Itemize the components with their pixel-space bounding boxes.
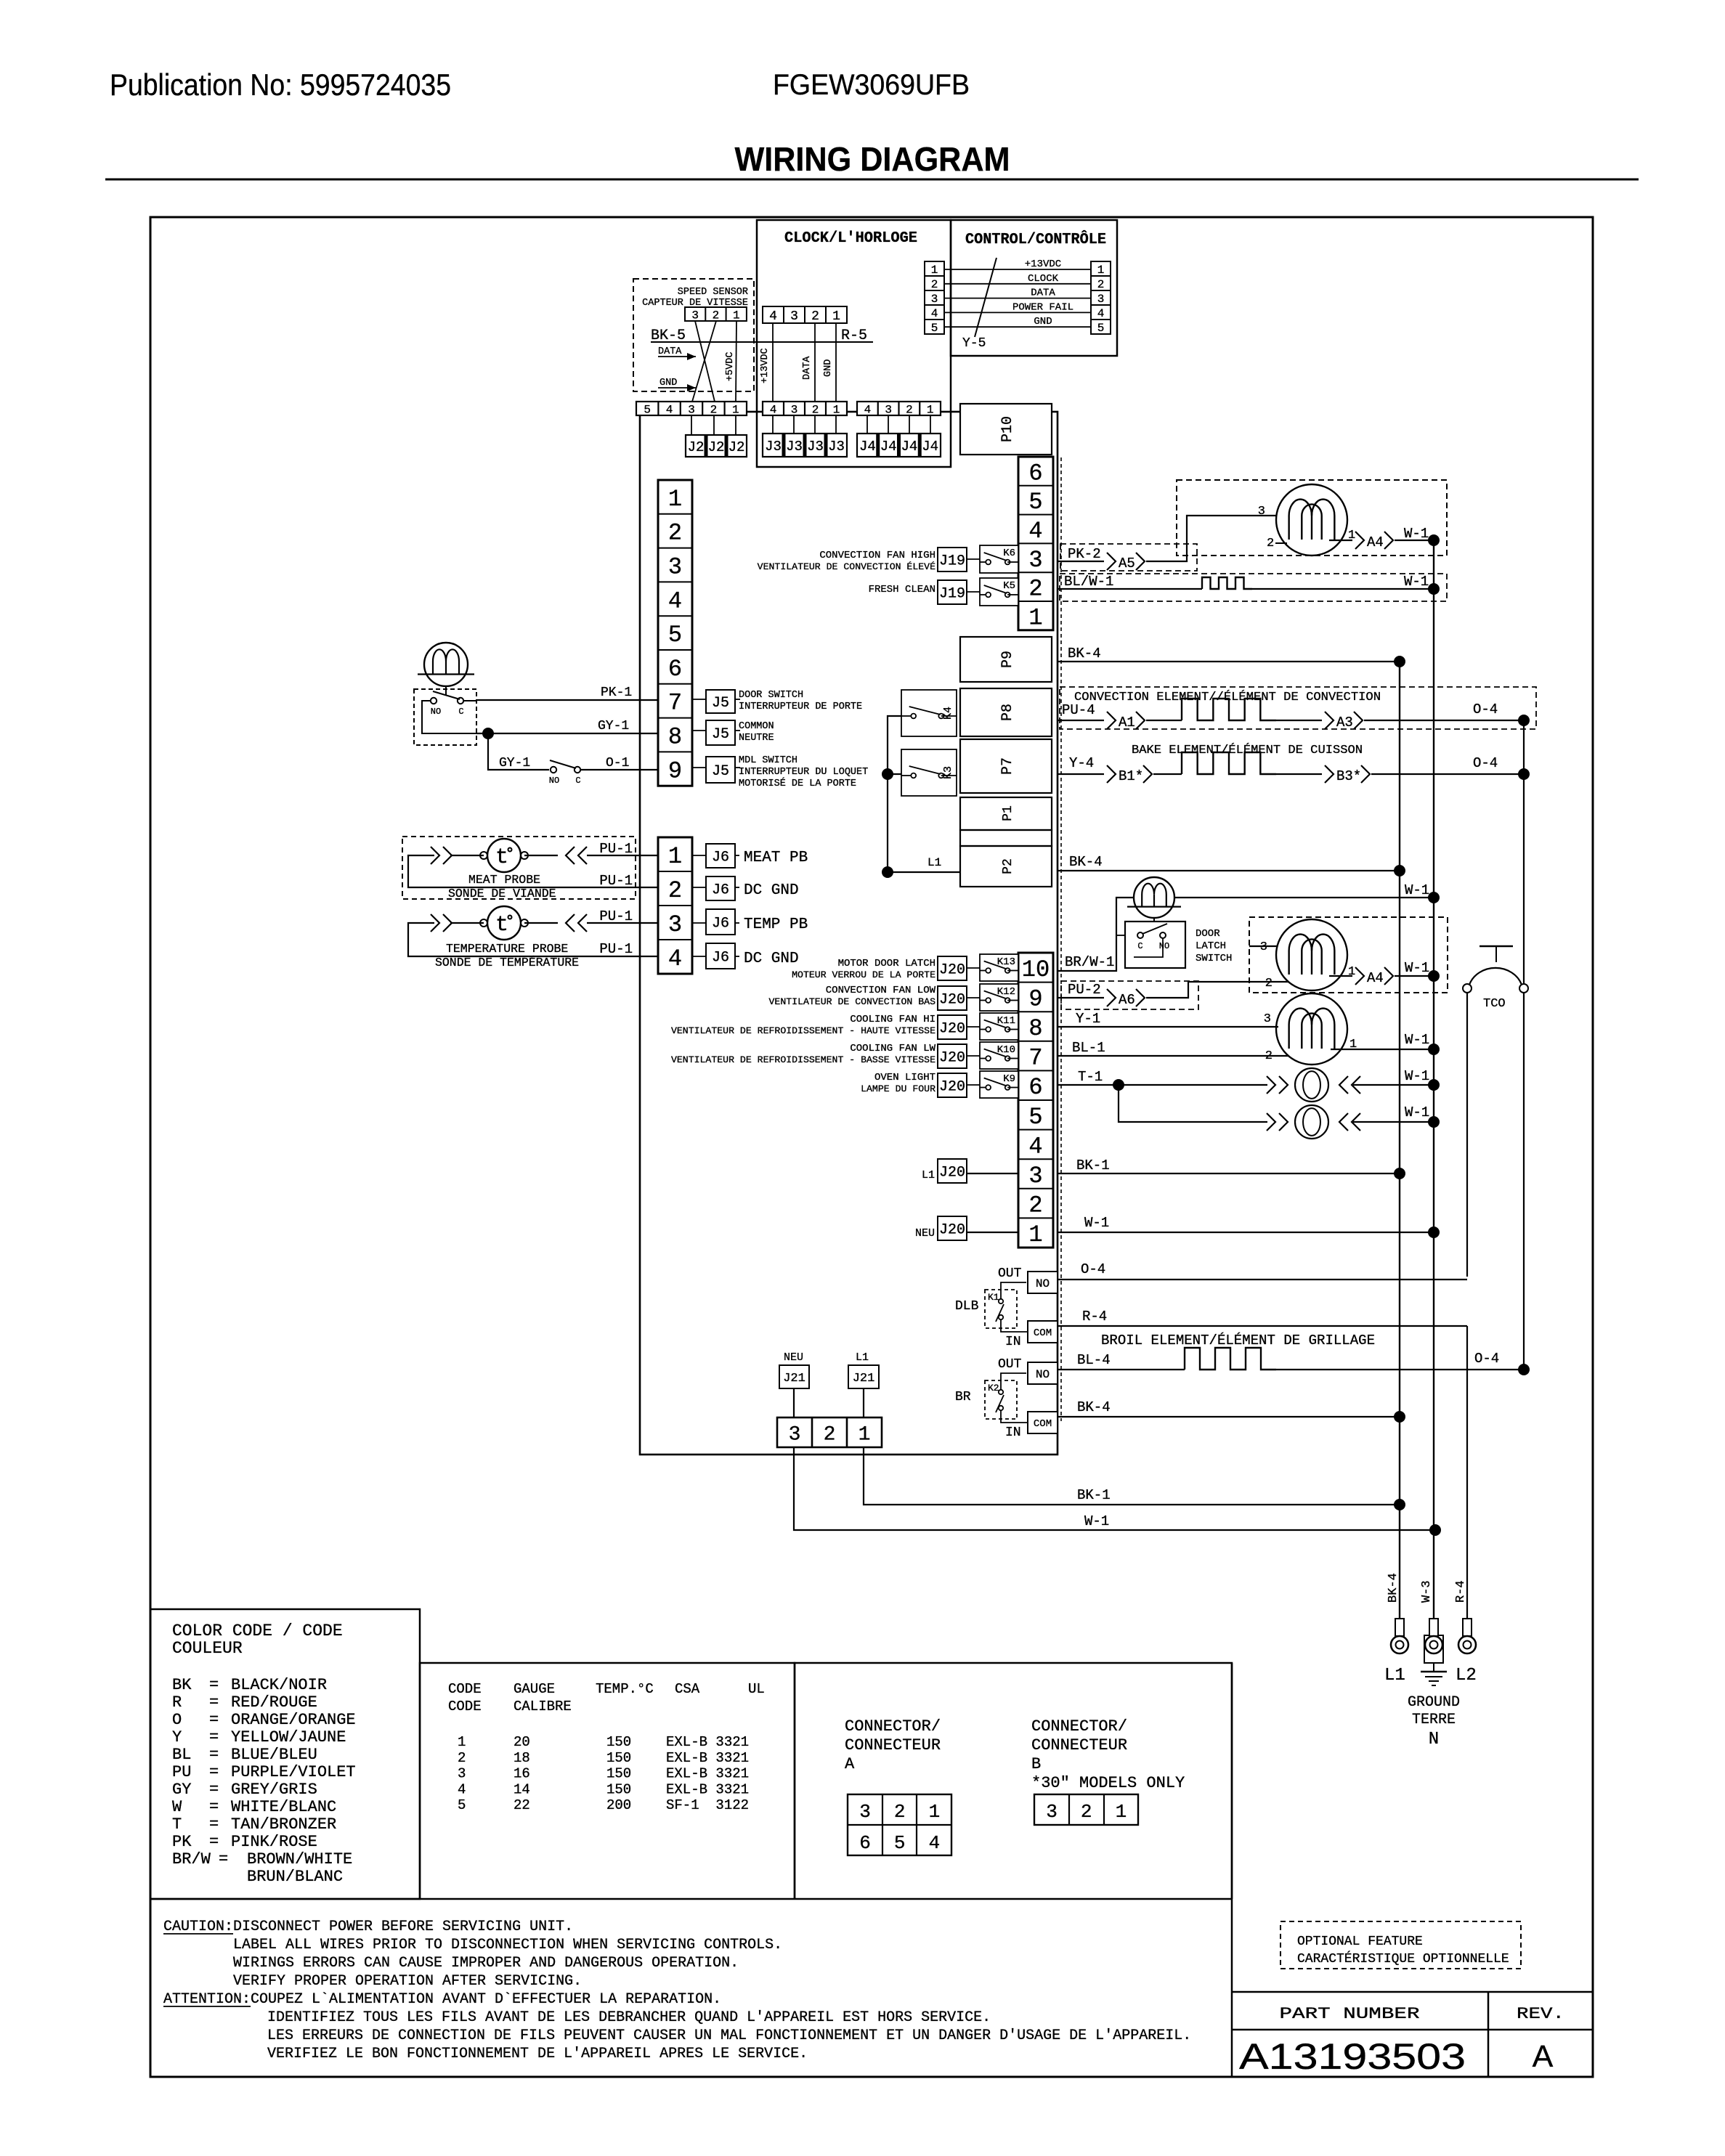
svg-text:7: 7 (1028, 1045, 1042, 1072)
svg-text:PU-1: PU-1 (599, 873, 633, 889)
svg-text:4: 4 (770, 403, 777, 416)
svg-text:O: O (172, 1711, 182, 1729)
svg-text:5: 5 (1028, 489, 1042, 516)
svg-text:GROUND: GROUND (1408, 1694, 1460, 1711)
svg-text:1: 1 (1028, 1221, 1042, 1248)
svg-text:CODE: CODE (448, 1699, 482, 1714)
svg-text:A3: A3 (1336, 715, 1353, 731)
svg-text:K1: K1 (988, 1292, 999, 1303)
svg-text:TERRE: TERRE (1412, 1712, 1456, 1728)
svg-text:1: 1 (929, 1801, 941, 1823)
svg-text:COULEUR: COULEUR (172, 1639, 243, 1658)
svg-text:EXL-B 3321: EXL-B 3321 (666, 1766, 749, 1782)
svg-text:OUT: OUT (998, 1266, 1022, 1281)
svg-text:MEAT PROBE: MEAT PROBE (468, 873, 540, 887)
svg-text:NEUTRE: NEUTRE (739, 733, 774, 744)
svg-text:PURPLE/VIOLET: PURPLE/VIOLET (231, 1763, 356, 1781)
svg-text:J20: J20 (939, 992, 965, 1009)
svg-text:LES ERREURS DE CONNECTION DE F: LES ERREURS DE CONNECTION DE FILS PEUVEN… (267, 2027, 1191, 2044)
svg-text:=: = (219, 1850, 228, 1868)
svg-text:CONVECTION ELEMENT//ÉLÉMENT DE: CONVECTION ELEMENT//ÉLÉMENT DE CONVECTIO… (1074, 690, 1381, 704)
svg-text:VENTILATEUR DE CONVECTION ÉLEV: VENTILATEUR DE CONVECTION ÉLEVÉ (758, 561, 935, 572)
svg-text:TCO: TCO (1483, 997, 1506, 1011)
svg-text:L1: L1 (928, 856, 941, 869)
svg-text:NO: NO (549, 776, 559, 786)
svg-text:PU: PU (172, 1763, 191, 1781)
svg-text:O-4: O-4 (1081, 1261, 1105, 1277)
svg-text:TEMP.°C: TEMP.°C (596, 1681, 654, 1697)
svg-text:W-1: W-1 (1084, 1215, 1109, 1231)
svg-text:CONNECTOR/: CONNECTOR/ (1031, 1717, 1127, 1736)
svg-text:REV.: REV. (1517, 2005, 1564, 2023)
svg-text:CARACTÉRISTIQUE OPTIONNELLE: CARACTÉRISTIQUE OPTIONNELLE (1297, 1950, 1509, 1966)
svg-text:INTERRUPTEUR DU LOQUET: INTERRUPTEUR DU LOQUET (739, 767, 868, 778)
svg-text:10: 10 (1022, 956, 1050, 983)
svg-text:J20: J20 (939, 1222, 965, 1239)
svg-text:J6: J6 (712, 850, 729, 866)
svg-text:NEU: NEU (784, 1351, 803, 1364)
svg-text:DOOR SWITCH: DOOR SWITCH (739, 690, 803, 701)
svg-text:BROWN/WHITE: BROWN/WHITE (247, 1850, 352, 1868)
svg-text:2: 2 (906, 403, 913, 416)
svg-text:R-4: R-4 (1454, 1580, 1468, 1603)
svg-text:SWITCH: SWITCH (1196, 953, 1232, 964)
svg-text:W-3: W-3 (1420, 1580, 1434, 1603)
svg-text:=: = (209, 1728, 219, 1746)
svg-text:6: 6 (1028, 460, 1042, 487)
svg-text:PU-4: PU-4 (1062, 702, 1095, 718)
svg-text:1: 1 (931, 264, 938, 277)
svg-text:J3: J3 (765, 439, 782, 455)
svg-text:W-1: W-1 (1405, 1105, 1429, 1120)
svg-text:2: 2 (1081, 1801, 1092, 1823)
svg-text:3: 3 (790, 309, 798, 324)
svg-text:BK-1: BK-1 (1076, 1158, 1110, 1173)
svg-text:J5: J5 (712, 726, 729, 743)
svg-text:T: T (172, 1815, 182, 1834)
svg-text:EXL-B 3321: EXL-B 3321 (666, 1734, 749, 1750)
svg-text:MDL SWITCH: MDL SWITCH (739, 755, 797, 766)
svg-text:SPEED SENSOR: SPEED SENSOR (678, 287, 748, 298)
svg-text:GND: GND (823, 359, 834, 377)
svg-text:PU-1: PU-1 (599, 941, 633, 957)
svg-text:2: 2 (894, 1801, 906, 1823)
svg-text:K4: K4 (942, 707, 954, 720)
svg-text:J4: J4 (859, 439, 876, 455)
svg-text:3: 3 (691, 309, 699, 322)
svg-text:L1: L1 (1384, 1666, 1405, 1685)
svg-text:INTERRUPTEUR DE PORTE: INTERRUPTEUR DE PORTE (739, 701, 862, 712)
svg-text:4: 4 (769, 309, 777, 324)
svg-text:VERIFIEZ LE BON FONCTIONNEMENT: VERIFIEZ LE BON FONCTIONNEMENT DE L'APPA… (267, 2046, 808, 2062)
svg-text:3: 3 (791, 403, 798, 416)
svg-text:PK-1: PK-1 (601, 686, 632, 700)
svg-text:POWER FAIL: POWER FAIL (1012, 301, 1073, 313)
svg-text:8: 8 (1028, 1015, 1042, 1042)
svg-text:OUT: OUT (998, 1357, 1022, 1372)
svg-text:6: 6 (859, 1832, 871, 1854)
svg-text:VENTILATEUR DE CONVECTION BAS: VENTILATEUR DE CONVECTION BAS (769, 996, 936, 1007)
svg-text:COLOR CODE / CODE: COLOR CODE / CODE (172, 1622, 343, 1640)
svg-text:1: 1 (732, 403, 739, 416)
svg-text:5: 5 (1097, 322, 1105, 335)
svg-text:9: 9 (668, 757, 682, 784)
svg-text:2: 2 (710, 403, 718, 416)
svg-text:A: A (845, 1755, 855, 1773)
svg-text:200: 200 (606, 1797, 631, 1813)
svg-text:Publication No: 5995724035: Publication No: 5995724035 (110, 68, 451, 102)
svg-text:2: 2 (812, 403, 819, 416)
svg-text:VERIFY PROPER OPERATION AFTER: VERIFY PROPER OPERATION AFTER SERVICING. (233, 1973, 582, 1990)
svg-text:7: 7 (668, 690, 682, 717)
svg-text:3: 3 (885, 403, 892, 416)
svg-text:IDENTIFIEZ TOUS LES FILS AVANT: IDENTIFIEZ TOUS LES FILS AVANT DE LES DE… (267, 2009, 991, 2026)
svg-text:=: = (209, 1746, 219, 1764)
svg-text:GAUGE: GAUGE (514, 1681, 555, 1697)
svg-text:3: 3 (1264, 1012, 1271, 1026)
svg-text:COM: COM (1034, 1418, 1052, 1430)
svg-text:DLB: DLB (955, 1299, 979, 1314)
svg-text:YELLOW/JAUNE: YELLOW/JAUNE (231, 1728, 346, 1746)
svg-text:2: 2 (713, 309, 720, 322)
svg-text:DATA: DATA (802, 356, 813, 380)
svg-text:LATCH: LATCH (1196, 940, 1226, 952)
svg-text:SONDE DE VIANDE: SONDE DE VIANDE (448, 887, 556, 900)
svg-text:BK: BK (172, 1676, 192, 1694)
svg-text:2: 2 (931, 278, 938, 291)
svg-text:1: 1 (733, 309, 740, 322)
svg-text:B: B (1031, 1755, 1041, 1773)
svg-text:J19: J19 (939, 586, 965, 603)
svg-text:5: 5 (931, 322, 938, 335)
svg-text:W-1: W-1 (1405, 1068, 1429, 1084)
svg-text:B3*: B3* (1336, 768, 1361, 784)
svg-text:TEMPERATURE PROBE: TEMPERATURE PROBE (446, 942, 568, 956)
svg-text:OVEN LIGHT: OVEN LIGHT (874, 1072, 935, 1083)
svg-text:BRUN/BLANC: BRUN/BLANC (247, 1868, 343, 1886)
svg-text:=: = (209, 1711, 219, 1729)
svg-text:6: 6 (1028, 1074, 1042, 1101)
svg-text:t: t (495, 845, 508, 870)
svg-text:4: 4 (1028, 518, 1042, 545)
svg-text:GND: GND (659, 378, 677, 389)
svg-text:J4: J4 (901, 439, 917, 455)
svg-text:2: 2 (1097, 278, 1105, 291)
svg-text:CLOCK/L'HORLOGE: CLOCK/L'HORLOGE (784, 230, 917, 247)
svg-text:3: 3 (668, 911, 682, 938)
svg-text:W-1: W-1 (1084, 1513, 1109, 1529)
svg-text:ATTENTION:: ATTENTION: (163, 1991, 251, 2008)
svg-text:GY-1: GY-1 (499, 756, 530, 770)
svg-text:FRESH CLEAN: FRESH CLEAN (869, 584, 935, 595)
svg-text:J6: J6 (712, 916, 729, 932)
svg-text:2: 2 (1028, 1192, 1042, 1219)
svg-text:CONVECTION FAN LOW: CONVECTION FAN LOW (826, 985, 936, 996)
svg-text:5: 5 (894, 1832, 906, 1854)
svg-text:MOTEUR VERROU DE LA PORTE: MOTEUR VERROU DE LA PORTE (792, 969, 935, 980)
svg-text:CONNECTEUR: CONNECTEUR (845, 1736, 941, 1754)
svg-text:1: 1 (1348, 965, 1355, 979)
svg-text:=: = (209, 1833, 219, 1851)
svg-text:O-4: O-4 (1473, 755, 1498, 771)
svg-text:EXL-B 3321: EXL-B 3321 (666, 1750, 749, 1766)
svg-text:+13VDC: +13VDC (1025, 259, 1061, 270)
svg-text:1: 1 (833, 403, 840, 416)
svg-text:4: 4 (1097, 307, 1105, 320)
svg-text:BAKE ELEMENT/ÉLÉMENT DE CUISSO: BAKE ELEMENT/ÉLÉMENT DE CUISSON (1132, 743, 1363, 757)
svg-text:VENTILATEUR DE REFROIDISSEMENT: VENTILATEUR DE REFROIDISSEMENT - HAUTE V… (671, 1025, 935, 1036)
svg-text:MOTORISÉ DE LA PORTE: MOTORISÉ DE LA PORTE (739, 778, 856, 789)
svg-text:C: C (458, 707, 463, 717)
svg-text:PINK/ROSE: PINK/ROSE (231, 1833, 317, 1851)
svg-text:K5: K5 (1003, 580, 1015, 592)
svg-text:1: 1 (859, 1424, 871, 1447)
svg-text:150: 150 (606, 1766, 631, 1782)
svg-text:K6: K6 (1003, 548, 1015, 559)
svg-text:O-4: O-4 (1473, 701, 1498, 717)
svg-text:3: 3 (1028, 547, 1042, 574)
svg-text:J3: J3 (807, 439, 824, 455)
svg-text:2: 2 (458, 1750, 466, 1766)
svg-text:2: 2 (1265, 977, 1273, 990)
svg-text:RED/ROUGE: RED/ROUGE (231, 1693, 317, 1712)
svg-text:Y-1: Y-1 (1076, 1011, 1100, 1027)
svg-text:150: 150 (606, 1750, 631, 1766)
svg-text:TAN/BRONZER: TAN/BRONZER (231, 1815, 336, 1834)
svg-text:5: 5 (644, 403, 651, 416)
svg-text:+13VDC: +13VDC (760, 348, 771, 383)
svg-text:1: 1 (458, 1734, 466, 1750)
svg-text:A4: A4 (1367, 970, 1384, 986)
svg-text:COOLING FAN HI: COOLING FAN HI (850, 1014, 935, 1025)
svg-text:GREY/GRIS: GREY/GRIS (231, 1781, 317, 1799)
svg-text:3: 3 (1258, 505, 1265, 518)
svg-text:4: 4 (458, 1781, 466, 1797)
svg-text:J2: J2 (708, 439, 725, 455)
svg-text:W-1: W-1 (1405, 960, 1429, 976)
svg-text:J19: J19 (939, 553, 965, 570)
svg-text:CALIBRE: CALIBRE (514, 1699, 572, 1714)
svg-text:16: 16 (514, 1766, 530, 1782)
svg-text:CONNECTEUR: CONNECTEUR (1031, 1736, 1127, 1754)
svg-text:P10: P10 (999, 416, 1016, 442)
svg-text:=: = (209, 1693, 219, 1712)
svg-text:J5: J5 (712, 763, 729, 780)
svg-text:SF-1 3122: SF-1 3122 (666, 1797, 749, 1813)
svg-text:BL/W-1: BL/W-1 (1064, 574, 1113, 590)
svg-text:LABEL ALL WIRES PRIOR TO DISCO: LABEL ALL WIRES PRIOR TO DISCONNECTION W… (233, 1937, 782, 1953)
svg-text:B1*: B1* (1119, 768, 1143, 784)
svg-text:CONVECTION FAN HIGH: CONVECTION FAN HIGH (819, 550, 935, 561)
svg-text:4: 4 (668, 945, 682, 972)
svg-text:A: A (1533, 2039, 1554, 2074)
svg-text:R-5: R-5 (841, 328, 867, 344)
svg-text:2: 2 (811, 309, 819, 324)
svg-text:GND: GND (1034, 316, 1052, 328)
svg-text:PK-2: PK-2 (1068, 546, 1101, 562)
svg-text:CSA: CSA (675, 1681, 700, 1697)
svg-text:PART NUMBER: PART NUMBER (1280, 2005, 1420, 2023)
svg-text:3: 3 (931, 293, 938, 306)
svg-text:J3: J3 (786, 439, 803, 455)
svg-text:*30" MODELS ONLY: *30" MODELS ONLY (1031, 1774, 1185, 1792)
svg-text:J2: J2 (728, 439, 745, 455)
svg-text:3: 3 (789, 1424, 801, 1447)
svg-text:K2: K2 (988, 1383, 999, 1394)
svg-text:MEAT PB: MEAT PB (744, 850, 808, 866)
svg-text:BL: BL (172, 1746, 191, 1764)
svg-text:IN: IN (1005, 1425, 1021, 1440)
svg-text:=: = (209, 1781, 219, 1799)
svg-text:1: 1 (668, 486, 682, 513)
svg-text:BK-4: BK-4 (1069, 854, 1103, 870)
svg-text:T-1: T-1 (1078, 1069, 1103, 1085)
svg-text:1: 1 (1116, 1801, 1127, 1823)
svg-text:MOTOR DOOR LATCH: MOTOR DOOR LATCH (838, 958, 935, 969)
svg-text:5: 5 (668, 622, 682, 648)
svg-text:J2: J2 (688, 439, 705, 455)
svg-text:P2: P2 (1001, 858, 1015, 874)
svg-text:CODE: CODE (448, 1681, 482, 1697)
svg-text:2: 2 (668, 520, 682, 547)
svg-text:2: 2 (1267, 537, 1274, 550)
svg-text:J6: J6 (712, 950, 729, 967)
svg-text:1: 1 (668, 843, 682, 870)
svg-text:GY: GY (172, 1781, 191, 1799)
svg-text:4: 4 (864, 403, 872, 416)
svg-text:5: 5 (1028, 1104, 1042, 1131)
svg-text:O-4: O-4 (1474, 1351, 1499, 1367)
svg-text:L2: L2 (1456, 1666, 1477, 1685)
svg-text:2: 2 (668, 877, 682, 904)
svg-text:2: 2 (1028, 576, 1042, 603)
svg-text:R: R (172, 1693, 182, 1712)
svg-text:J20: J20 (939, 1165, 965, 1181)
svg-text:ORANGE/ORANGE: ORANGE/ORANGE (231, 1711, 356, 1729)
svg-text:18: 18 (514, 1750, 530, 1766)
svg-text:FGEW3069UFB: FGEW3069UFB (773, 69, 970, 101)
svg-text:DISCONNECT POWER BEFORE SERVIC: DISCONNECT POWER BEFORE SERVICING UNIT. (233, 1919, 573, 1935)
svg-text:C: C (575, 776, 580, 786)
svg-text:PU-1: PU-1 (599, 908, 633, 924)
svg-text:VENTILATEUR DE REFROIDISSEMENT: VENTILATEUR DE REFROIDISSEMENT - BASSE V… (671, 1054, 935, 1065)
svg-text:=: = (209, 1676, 219, 1694)
svg-text:CONNECTOR/: CONNECTOR/ (845, 1717, 941, 1736)
svg-text:A4: A4 (1367, 534, 1384, 550)
svg-text:PU-1: PU-1 (599, 841, 633, 857)
svg-text:CAUTION:: CAUTION: (163, 1919, 233, 1935)
svg-text:UL: UL (748, 1681, 765, 1697)
svg-text:CONTROL/CONTRÔLE: CONTROL/CONTRÔLE (965, 231, 1106, 248)
svg-text:BK-4: BK-4 (1387, 1573, 1400, 1603)
svg-text:COUPEZ L`ALIMENTATION AVANT D`: COUPEZ L`ALIMENTATION AVANT D`EFFECTUER … (251, 1991, 721, 2008)
svg-text:6: 6 (668, 656, 682, 683)
svg-text:3: 3 (1097, 293, 1105, 306)
svg-text:NEU: NEU (915, 1227, 935, 1240)
svg-text:3: 3 (859, 1801, 871, 1823)
svg-text:150: 150 (606, 1781, 631, 1797)
svg-text:=: = (209, 1763, 219, 1781)
svg-text:3: 3 (1028, 1163, 1042, 1189)
svg-text:NO: NO (1036, 1368, 1050, 1381)
svg-text:NO: NO (431, 707, 441, 717)
svg-text:P7: P7 (999, 757, 1016, 775)
svg-text:WIRINGS ERRORS CAN CAUSE IMPRO: WIRINGS ERRORS CAN CAUSE IMPROPER AND DA… (233, 1955, 739, 1972)
svg-text:BK-4: BK-4 (1077, 1399, 1111, 1415)
svg-text:DATA: DATA (658, 346, 682, 357)
svg-text:4: 4 (1028, 1133, 1042, 1160)
svg-text:A13193503: A13193503 (1239, 2036, 1466, 2077)
svg-text:COOLING FAN LW: COOLING FAN LW (850, 1043, 935, 1054)
svg-text:PU-2: PU-2 (1068, 982, 1101, 998)
svg-text:J4: J4 (880, 439, 897, 455)
svg-text:t: t (495, 913, 508, 937)
svg-text:Y-5: Y-5 (962, 336, 986, 351)
svg-text:DC GND: DC GND (744, 882, 799, 899)
svg-text:=: = (209, 1798, 219, 1816)
svg-text:J20: J20 (939, 962, 965, 979)
svg-text:14: 14 (514, 1781, 530, 1797)
svg-text:4: 4 (929, 1832, 941, 1854)
svg-text:1: 1 (1097, 264, 1105, 277)
svg-text:4: 4 (931, 307, 938, 320)
svg-text:20: 20 (514, 1734, 530, 1750)
svg-text:W-1: W-1 (1405, 882, 1429, 898)
svg-text:=: = (209, 1815, 219, 1834)
svg-text:3: 3 (688, 403, 695, 416)
svg-text:J3: J3 (828, 439, 845, 455)
svg-text:R-4: R-4 (1082, 1309, 1107, 1325)
svg-text:K9: K9 (1003, 1073, 1015, 1085)
svg-text:C: C (1137, 941, 1142, 951)
svg-text:SONDE DE TEMPÉRATURE: SONDE DE TEMPÉRATURE (435, 956, 579, 969)
svg-text:2: 2 (824, 1424, 836, 1447)
svg-text:5: 5 (458, 1797, 466, 1813)
svg-text:BL-4: BL-4 (1077, 1352, 1111, 1368)
svg-text:J20: J20 (939, 1050, 965, 1067)
svg-text:3: 3 (668, 554, 682, 581)
svg-text:1: 1 (1028, 604, 1042, 631)
svg-text:1: 1 (832, 309, 840, 324)
svg-text:J20: J20 (939, 1079, 965, 1096)
svg-text:1: 1 (927, 403, 934, 416)
svg-text:W-1: W-1 (1405, 1032, 1429, 1048)
svg-text:Y-4: Y-4 (1069, 755, 1094, 771)
svg-text:DC GND: DC GND (744, 951, 799, 967)
svg-text:J20: J20 (939, 1021, 965, 1038)
svg-text:2: 2 (1265, 1049, 1273, 1063)
svg-text:BR/W-1: BR/W-1 (1065, 954, 1114, 970)
svg-text:BK-1: BK-1 (1077, 1487, 1111, 1503)
svg-text:DATA: DATA (1031, 288, 1055, 299)
svg-text:IN: IN (1005, 1335, 1021, 1349)
svg-text:A1: A1 (1119, 715, 1135, 731)
svg-text:W-1: W-1 (1404, 526, 1429, 542)
svg-text:P8: P8 (999, 704, 1016, 721)
svg-text:BR: BR (955, 1390, 971, 1404)
svg-text:W: W (172, 1798, 182, 1816)
svg-text:BLUE/BLEU: BLUE/BLEU (231, 1746, 317, 1764)
svg-text:J5: J5 (712, 695, 729, 712)
svg-text:+5VDC: +5VDC (725, 351, 736, 381)
svg-text:CLOCK: CLOCK (1028, 273, 1059, 285)
svg-text:PK: PK (172, 1833, 192, 1851)
svg-text:4: 4 (668, 587, 682, 614)
svg-text:BROIL ELEMENT/ÉLÉMENT DE GRILL: BROIL ELEMENT/ÉLÉMENT DE GRILLAGE (1101, 1333, 1375, 1348)
svg-text:150: 150 (606, 1734, 631, 1750)
svg-text:L1: L1 (856, 1351, 869, 1364)
svg-text:22: 22 (514, 1797, 530, 1813)
